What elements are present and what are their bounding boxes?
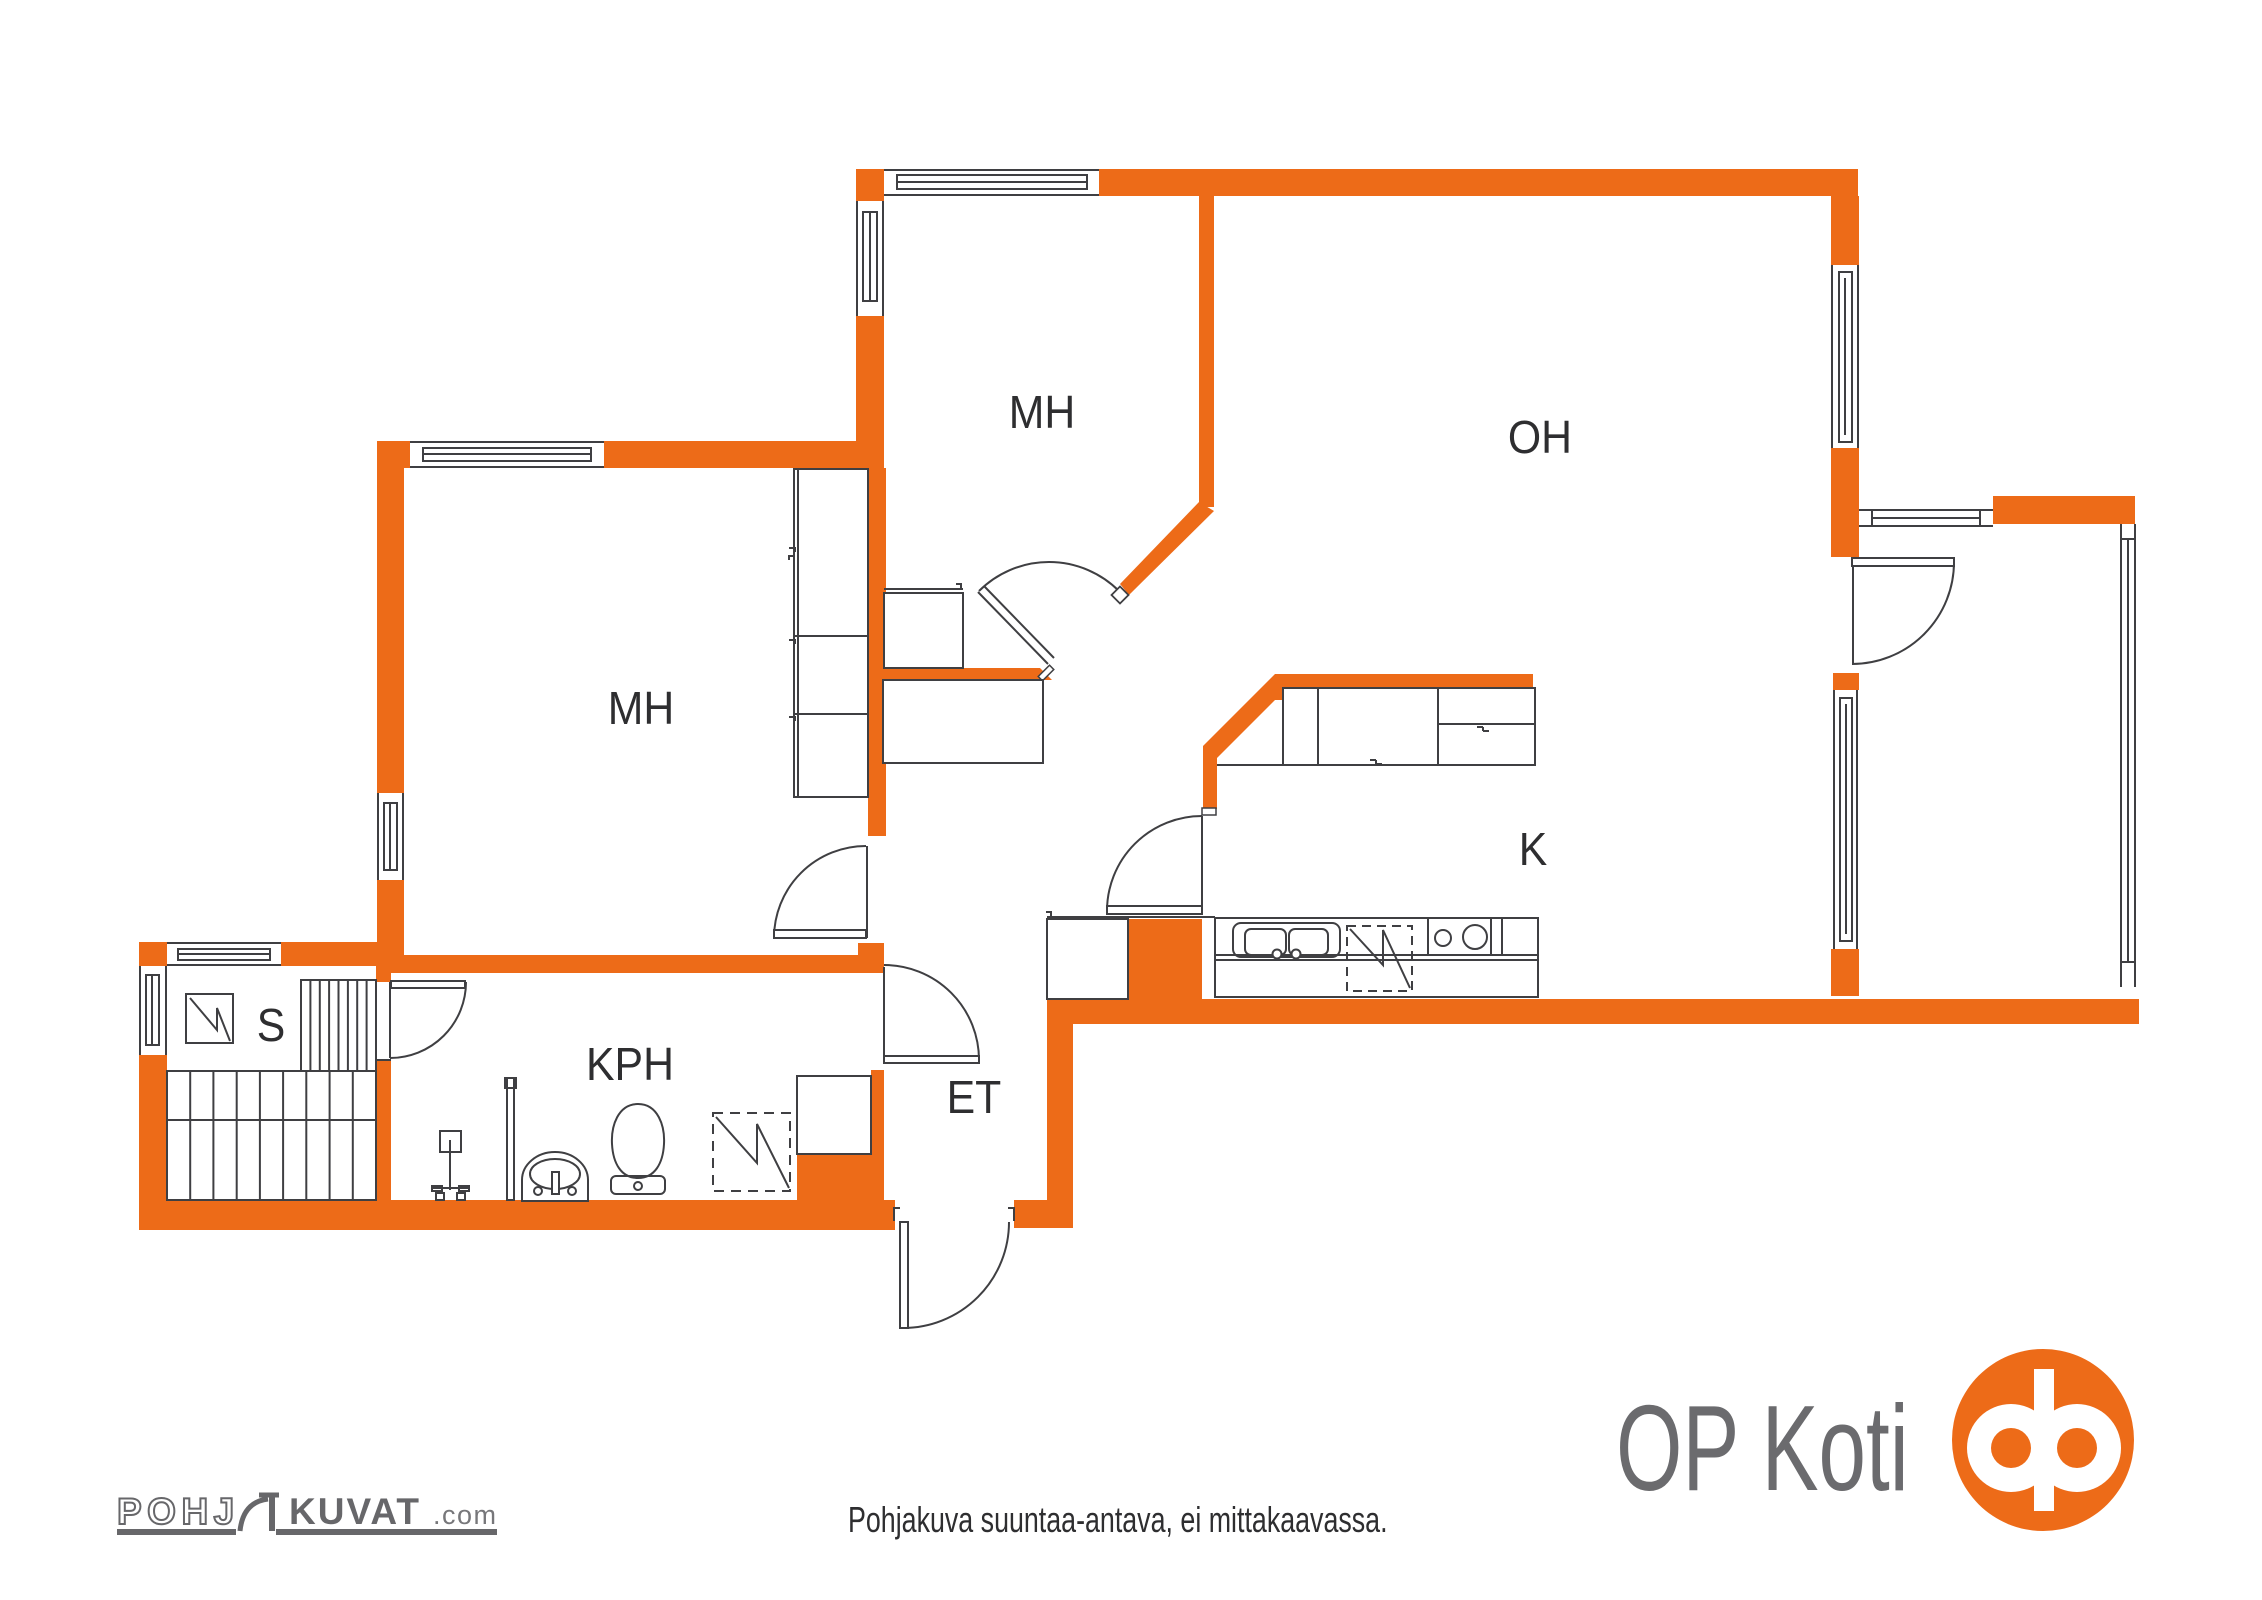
svg-text:.com: .com: [433, 1500, 498, 1530]
svg-text:OP Koti: OP Koti: [1616, 1381, 1909, 1517]
svg-text:Pohjakuva suuntaa-antava, ei m: Pohjakuva suuntaa-antava, ei mittakaavas…: [848, 1499, 1388, 1540]
svg-text:MH: MH: [1009, 388, 1076, 439]
svg-text:S: S: [257, 1001, 286, 1052]
svg-text:K: K: [1519, 825, 1548, 876]
svg-text:KUVAT: KUVAT: [289, 1491, 421, 1532]
svg-text:ET: ET: [947, 1073, 1002, 1124]
svg-text:MH: MH: [608, 684, 675, 735]
svg-text:OH: OH: [1508, 413, 1572, 464]
svg-text:KPH: KPH: [586, 1040, 674, 1091]
svg-text:POHJ: POHJ: [117, 1491, 240, 1532]
